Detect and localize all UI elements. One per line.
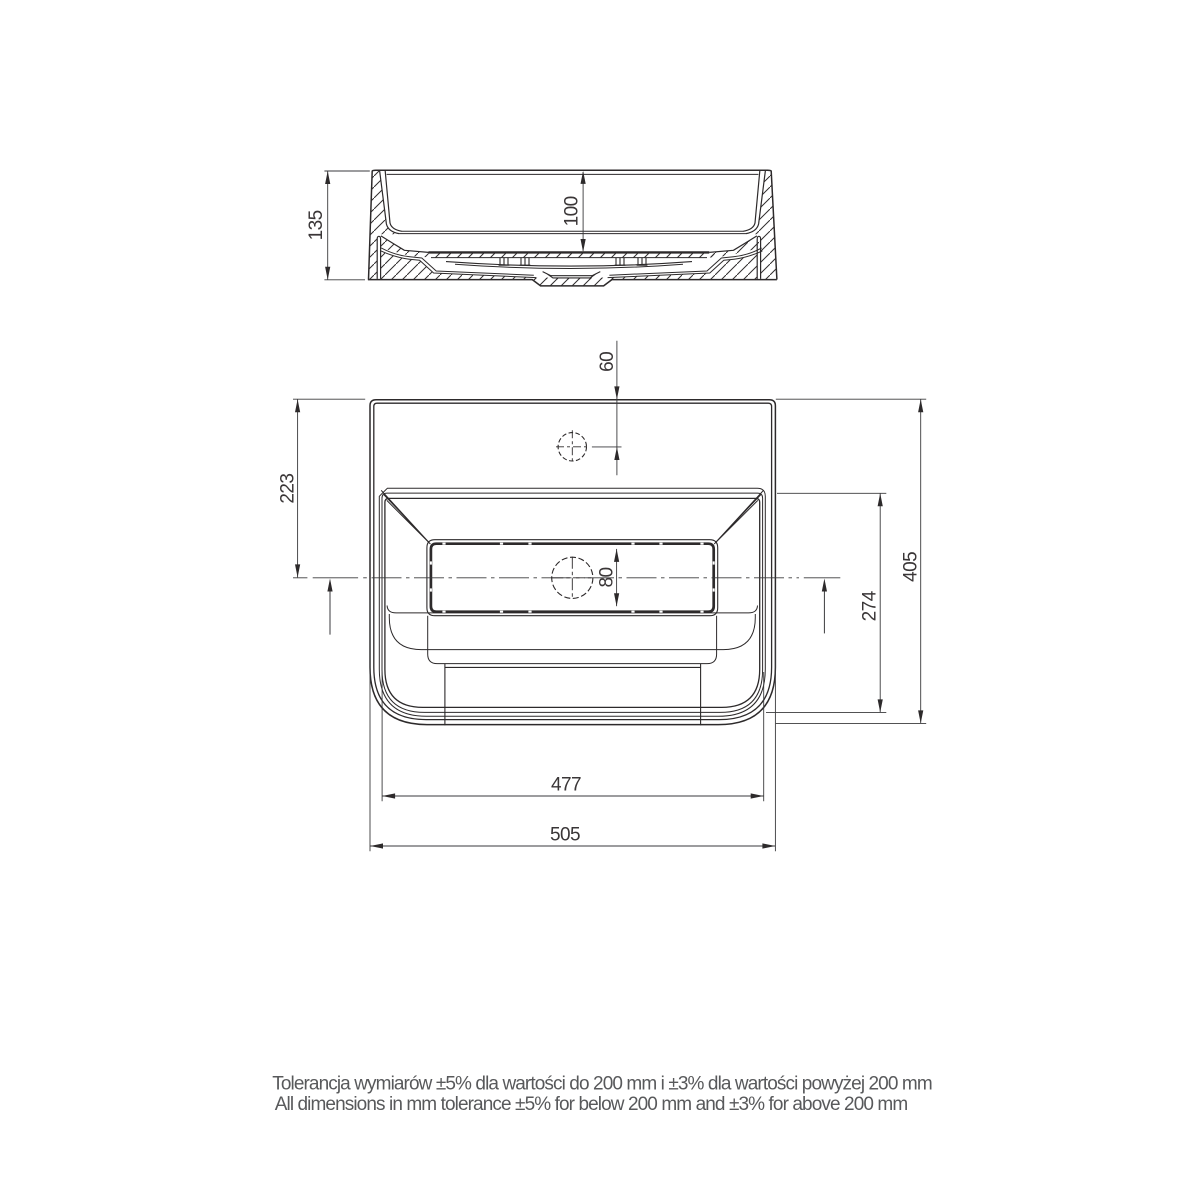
svg-text:80: 80 (597, 567, 618, 587)
svg-text:477: 477 (551, 775, 581, 796)
svg-text:405: 405 (900, 552, 921, 582)
svg-text:60: 60 (597, 352, 618, 372)
svg-text:135: 135 (306, 210, 327, 240)
svg-text:274: 274 (860, 590, 881, 621)
svg-text:223: 223 (278, 474, 299, 504)
svg-text:Tolerancja wymiarów ±5% dla wa: Tolerancja wymiarów ±5% dla wartości do … (272, 1073, 932, 1094)
svg-text:100: 100 (561, 196, 582, 226)
svg-text:All dimensions in mm tolerance: All dimensions in mm tolerance ±5% for b… (275, 1094, 908, 1115)
svg-text:505: 505 (550, 825, 580, 846)
